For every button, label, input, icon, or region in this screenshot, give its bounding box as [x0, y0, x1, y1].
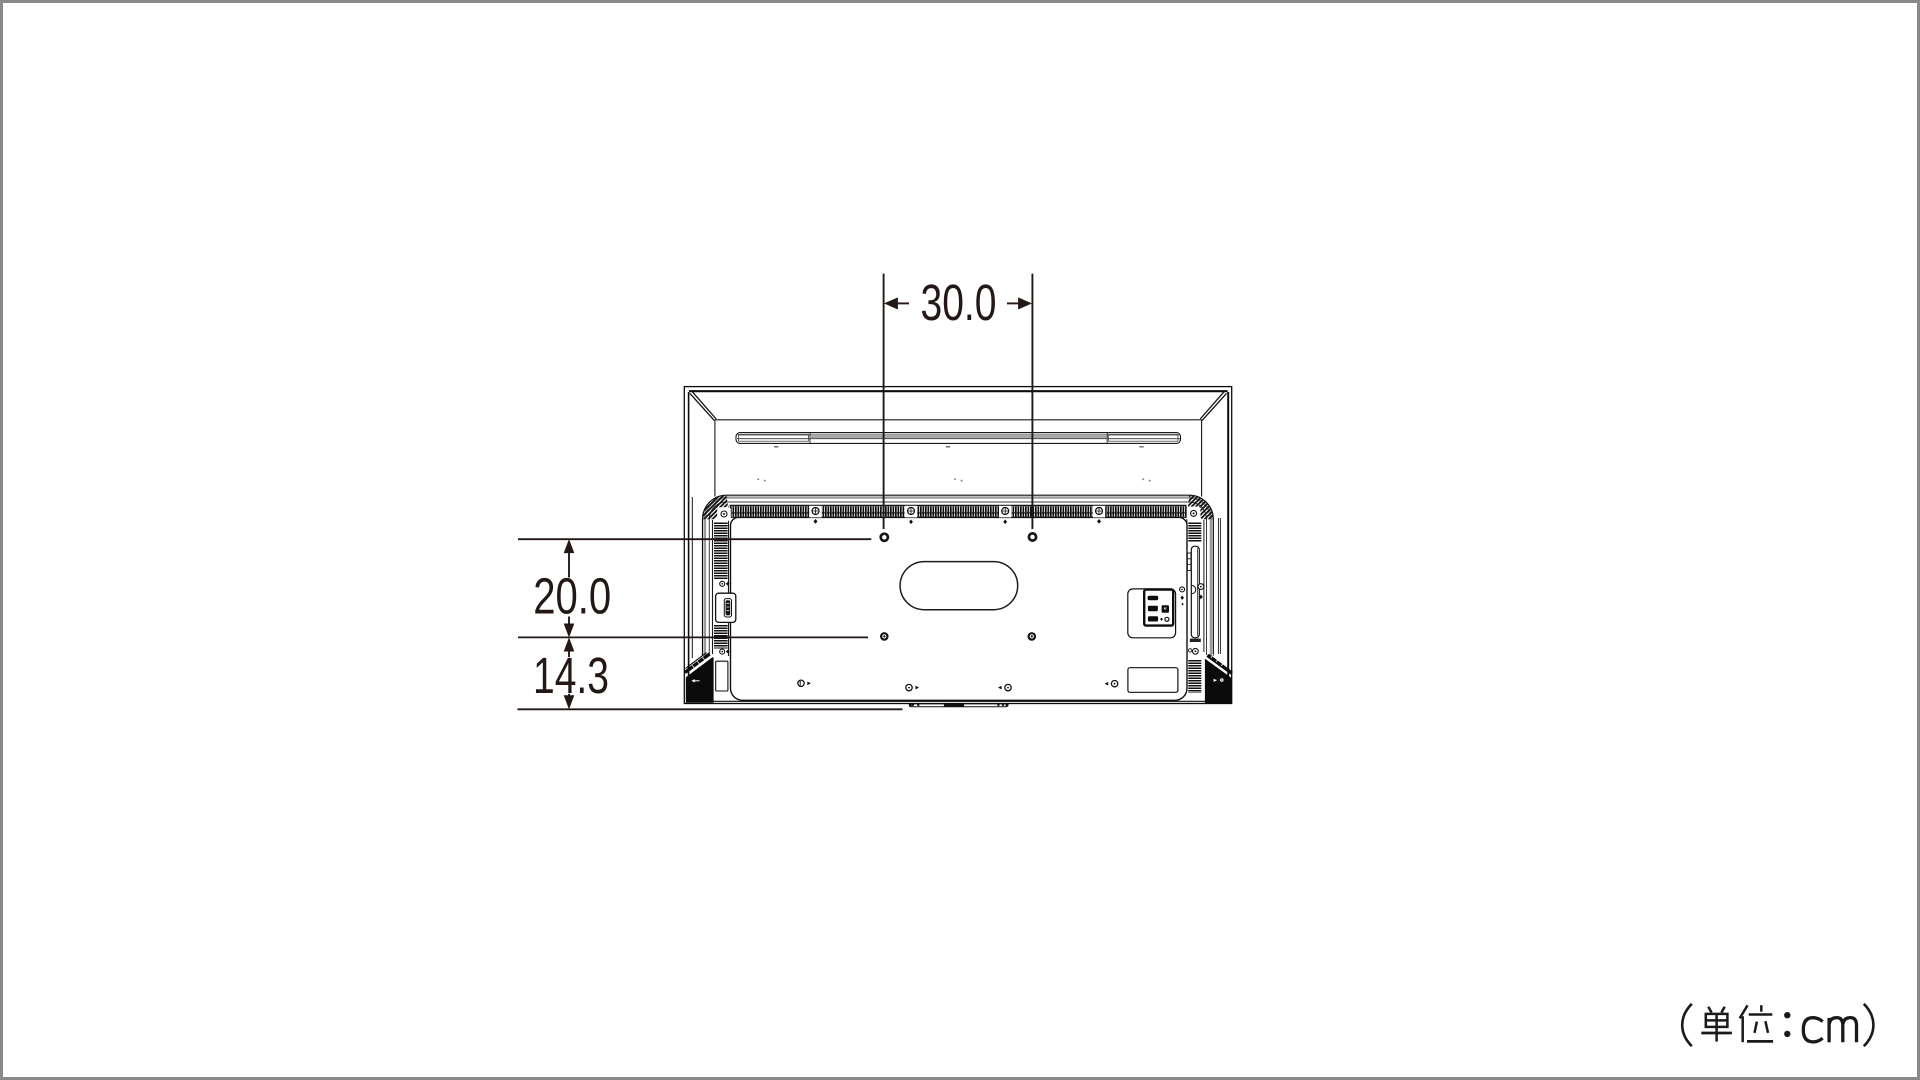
svg-text:14.3: 14.3 — [533, 647, 609, 704]
svg-text:30.0: 30.0 — [921, 274, 997, 331]
svg-text:20.0: 20.0 — [533, 568, 611, 625]
